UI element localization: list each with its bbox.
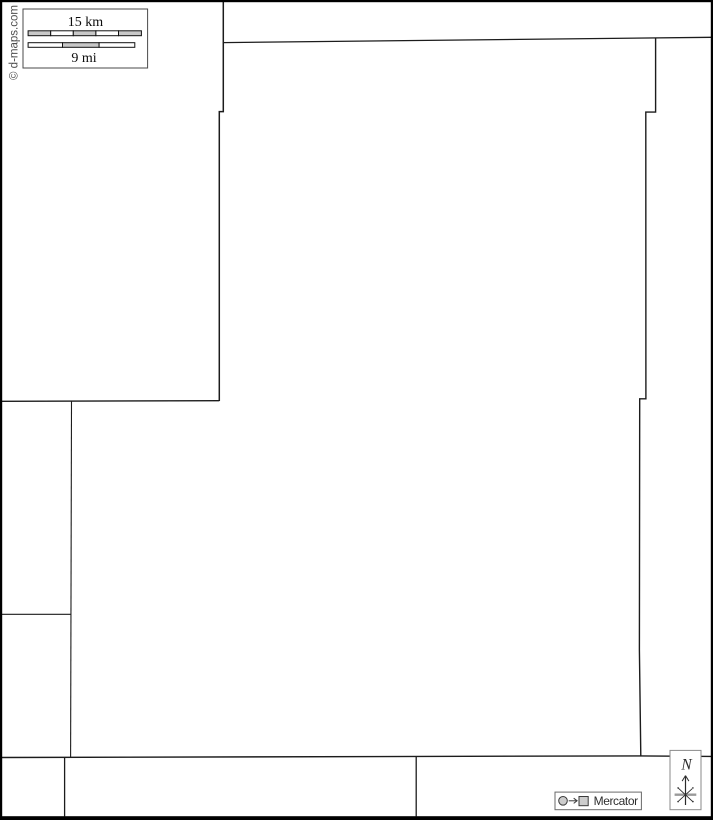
svg-text:Mercator: Mercator bbox=[594, 794, 639, 808]
svg-text:15 km: 15 km bbox=[68, 15, 104, 30]
svg-text:© d-maps.com: © d-maps.com bbox=[8, 5, 20, 80]
svg-text:N: N bbox=[680, 757, 693, 774]
svg-text:9 mi: 9 mi bbox=[71, 51, 96, 66]
